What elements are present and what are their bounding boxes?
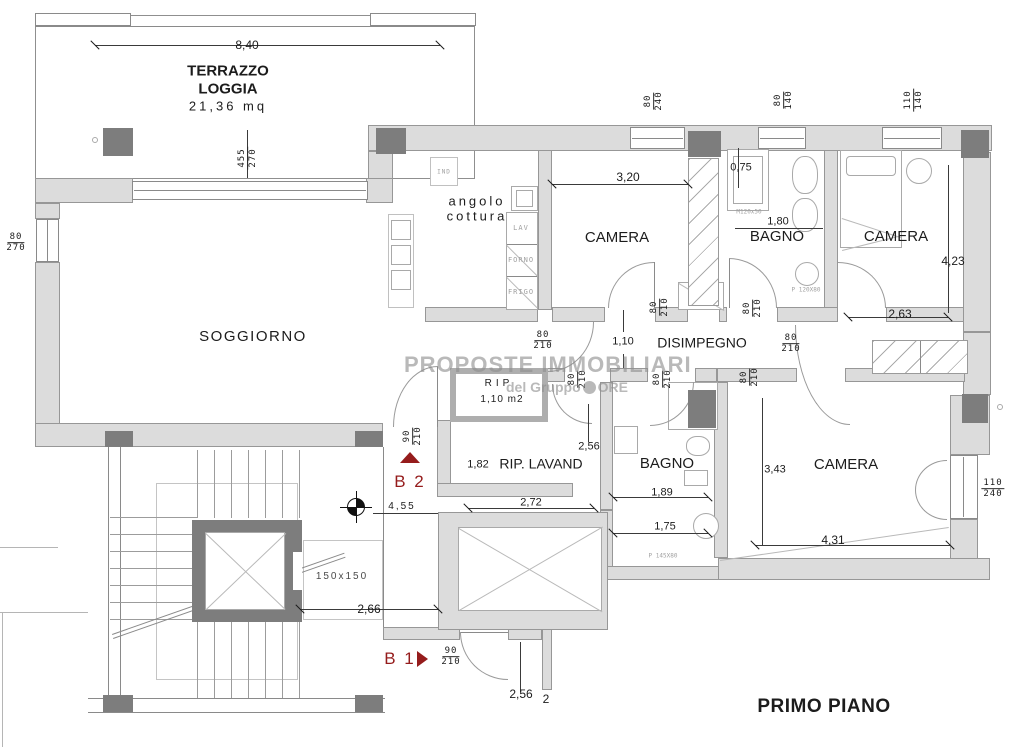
window-opening: [950, 455, 978, 519]
door-arc-camera1: [608, 262, 654, 308]
wall: [718, 558, 990, 580]
dim-1-89: 1,89: [651, 487, 672, 500]
appliance-divider: [507, 244, 537, 245]
door-arc-disimpegno: [548, 322, 594, 372]
pillar: [962, 394, 988, 423]
window-glass-line: [632, 138, 683, 139]
wall: [695, 368, 717, 382]
dim-80-210-f: 80210: [652, 369, 674, 388]
appliance-forno: FORNO: [508, 256, 534, 264]
room-rip: RIP: [485, 378, 514, 390]
room-camera-3: CAMERA: [814, 456, 878, 474]
stair-west-wall: [108, 447, 109, 700]
dim-110-240: 110240: [981, 478, 1004, 500]
room-terrazzo: TERRAZZO LOGGIA: [187, 62, 269, 97]
nightstand: [906, 158, 932, 184]
b2-direction-triangle: [400, 452, 420, 463]
door-arc-camera3: [795, 325, 850, 425]
dim-4-31: 4,31: [821, 533, 844, 547]
wall: [824, 150, 838, 308]
elevator-door-gap: [293, 552, 302, 590]
wall: [610, 368, 648, 382]
appliance-ind: IND: [437, 168, 451, 175]
room-disimpegno: DISIMPEGNO: [657, 335, 746, 352]
dim-455-270: 455270: [237, 146, 259, 169]
wall: [368, 151, 393, 180]
pillar: [688, 131, 721, 157]
dim-1-82: 1,82: [467, 459, 488, 472]
dim-1-10: 1,10: [612, 336, 633, 349]
survey-crosshair: [356, 491, 357, 523]
dim-2-cut: 2: [543, 692, 550, 706]
stair-south-wall: [88, 712, 385, 713]
detail-circle: [92, 137, 98, 143]
window-glass-line: [47, 220, 48, 261]
wall: [542, 627, 552, 690]
dim-line: [755, 545, 950, 546]
stairs-flight-side: [110, 517, 197, 620]
marker-b2: B 2: [394, 472, 426, 492]
kitchen-sink-basin: [516, 190, 533, 207]
pillar: [376, 128, 406, 154]
dim-line: [520, 642, 521, 692]
room-bagno-2: BAGNO: [640, 455, 694, 473]
dim-line: [948, 165, 949, 313]
shower-drain: [693, 513, 719, 539]
dim-3-43: 3,43: [764, 464, 785, 477]
wall: [35, 178, 133, 203]
dim-line: [373, 513, 438, 514]
floor-plan: PROPOSTE IMMOBILIARI del Gruppo ORE 8,40…: [0, 0, 1024, 747]
door-arc-b2: [393, 366, 438, 427]
wardrobe-divider: [920, 341, 921, 373]
window-glass-line: [134, 190, 366, 191]
window-glass-line: [760, 138, 804, 139]
dim-1-75: 1,75: [654, 521, 675, 534]
wall: [777, 307, 838, 322]
dim-90-210-b1: 90210: [441, 646, 460, 668]
appliance-frigo: FRIGO: [508, 288, 534, 296]
adjacent-outline: [0, 547, 58, 548]
pillow: [846, 156, 896, 176]
dim-90-210-b2: 90210: [402, 426, 424, 445]
door-arc-camera2: [838, 262, 886, 308]
stairs-flight-lower: [197, 622, 301, 698]
terrace-parapet: [370, 13, 476, 26]
toilet: [792, 156, 818, 194]
dim-3-20: 3,20: [616, 170, 639, 184]
stairs-flight-upper: [197, 450, 301, 518]
dim-line: [623, 310, 624, 332]
dim-line: [762, 398, 763, 546]
dim-2-66: 2,66: [357, 602, 380, 616]
dim-110-140: 110140: [903, 88, 925, 111]
plan-title: PRIMO PIANO: [757, 696, 890, 718]
pillar: [961, 130, 989, 158]
dim-80-210-a: 80210: [533, 330, 552, 352]
dim-80-210-d: 80210: [781, 333, 800, 355]
pillar: [103, 695, 133, 712]
wall: [552, 307, 605, 322]
terrazzo-area: 21,36 mq: [189, 98, 267, 113]
wall: [35, 262, 60, 424]
dim-8-40: 8,40: [235, 38, 258, 52]
rip-area: 1,10 m2: [480, 394, 523, 406]
toilet: [686, 436, 710, 456]
stair-lobby-wall: [383, 447, 384, 627]
room-soggiorno: SOGGIORNO: [199, 328, 307, 346]
hob-burner: [391, 270, 411, 290]
fixture-p120x80: P 120X80: [792, 286, 821, 293]
dim-2-56-b: 2,56: [509, 687, 532, 701]
fixture-p145x80: P 145X80: [649, 552, 678, 559]
dim-2-56-a: 2,56: [578, 441, 599, 454]
dim-2-72: 2,72: [520, 497, 541, 510]
duct-shaft: [688, 390, 716, 428]
marker-b1: B 1: [384, 649, 416, 669]
elevator-size: 150x150: [316, 571, 368, 583]
wall: [437, 483, 573, 497]
dim-2-63: 2,63: [888, 307, 911, 321]
hob-burner: [391, 220, 411, 240]
dim-line: [623, 354, 624, 368]
dim-4-55: 4,55: [388, 501, 415, 513]
appliance-lav: LAV: [513, 224, 529, 232]
dim-80-240: 80240: [643, 91, 665, 110]
pillar: [105, 431, 133, 447]
room-rip-lavand: RIP. LAVAND: [499, 456, 582, 473]
pillar: [103, 128, 133, 156]
room-camera-1: CAMERA: [585, 229, 649, 247]
window-glass-line: [963, 457, 964, 517]
terrace-parapet: [35, 13, 131, 26]
wall: [35, 423, 383, 447]
dim-80-210-e: 80210: [567, 369, 589, 388]
door-arc-b1: [460, 632, 508, 680]
appliance-divider: [507, 276, 537, 277]
wall: [600, 382, 613, 510]
pillar: [355, 695, 383, 712]
room-camera-2: CAMERA: [864, 228, 928, 246]
pillar: [355, 431, 383, 447]
window-glass-line: [884, 138, 940, 139]
wall: [950, 519, 978, 560]
hob-burner: [391, 245, 411, 265]
wall: [538, 150, 552, 310]
door-arc-riplavand: [552, 384, 592, 424]
wall: [366, 178, 393, 203]
shower-drain: [795, 262, 819, 286]
dim-1-80: 1,80: [767, 216, 788, 229]
detail-circle: [997, 404, 1003, 410]
dim-line: [95, 45, 440, 46]
bidet: [792, 198, 818, 232]
washing-machine: [614, 426, 638, 454]
dim-line: [588, 404, 589, 442]
terrace-railing-line: [35, 26, 475, 27]
french-door-leaf: [915, 490, 947, 520]
dim-80-210-c: 80210: [742, 298, 764, 317]
wall: [963, 152, 991, 332]
dim-80-140: 80140: [773, 90, 795, 109]
wardrobe-hatch: [688, 158, 719, 306]
dim-0-75: 0,75: [730, 162, 751, 175]
b1-direction-triangle: [417, 651, 428, 667]
dim-80-270: 80270: [6, 232, 25, 254]
dim-4-23: 4,23: [941, 254, 964, 268]
fixture-m120x50: M120x50: [736, 208, 761, 215]
room-bagno-1: BAGNO: [750, 228, 804, 246]
dim-80-210-g: 80210: [739, 367, 761, 386]
dim-80-210-b: 80210: [649, 297, 671, 316]
room-angolo-cottura: angolo cottura: [447, 194, 508, 225]
wall: [35, 203, 60, 219]
adjacent-outline: [0, 612, 88, 613]
dim-line: [552, 184, 688, 185]
adjacent-outline: [2, 612, 3, 747]
french-door-leaf: [915, 460, 947, 490]
